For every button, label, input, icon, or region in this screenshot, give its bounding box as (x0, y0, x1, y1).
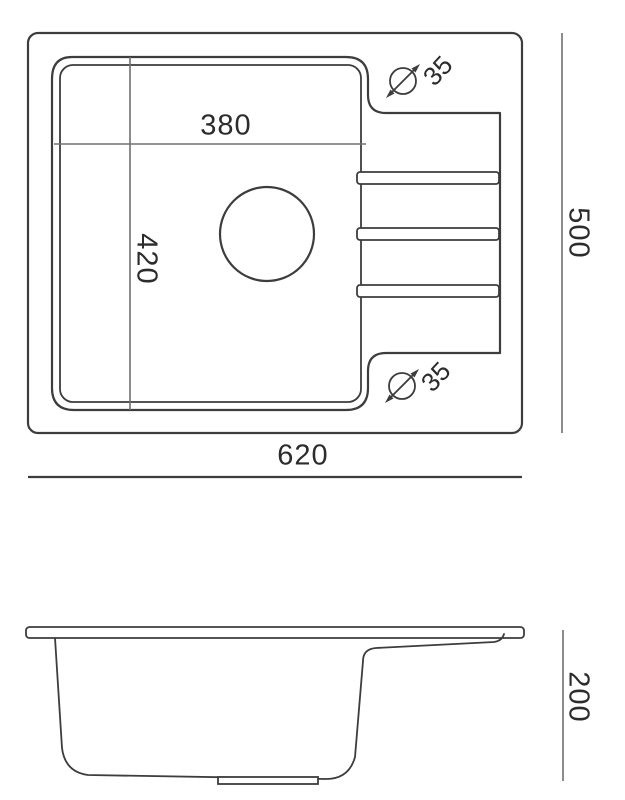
drain-hole (220, 187, 314, 281)
overall-width-label: 620 (277, 440, 328, 473)
side-foot-strip (218, 777, 318, 784)
drainer-groove-1 (357, 172, 499, 184)
drainer-groove-3 (357, 285, 499, 297)
side-bowl-profile (55, 634, 504, 779)
bowl-depth-label: 420 (130, 233, 163, 284)
drawing-canvas (0, 0, 625, 800)
drainer-groove-2 (357, 228, 499, 240)
tap-hole-top (386, 64, 420, 98)
bowl-width-label: 380 (200, 110, 251, 143)
tap-hole-bottom (385, 369, 419, 403)
sink-side-view (26, 627, 563, 784)
side-rim (26, 627, 524, 638)
side-height-label: 200 (562, 671, 595, 722)
overall-depth-label: 500 (562, 207, 595, 258)
sink-technical-drawing: 380 420 500 620 35 35 200 (0, 0, 625, 800)
sink-top-view (28, 33, 562, 477)
